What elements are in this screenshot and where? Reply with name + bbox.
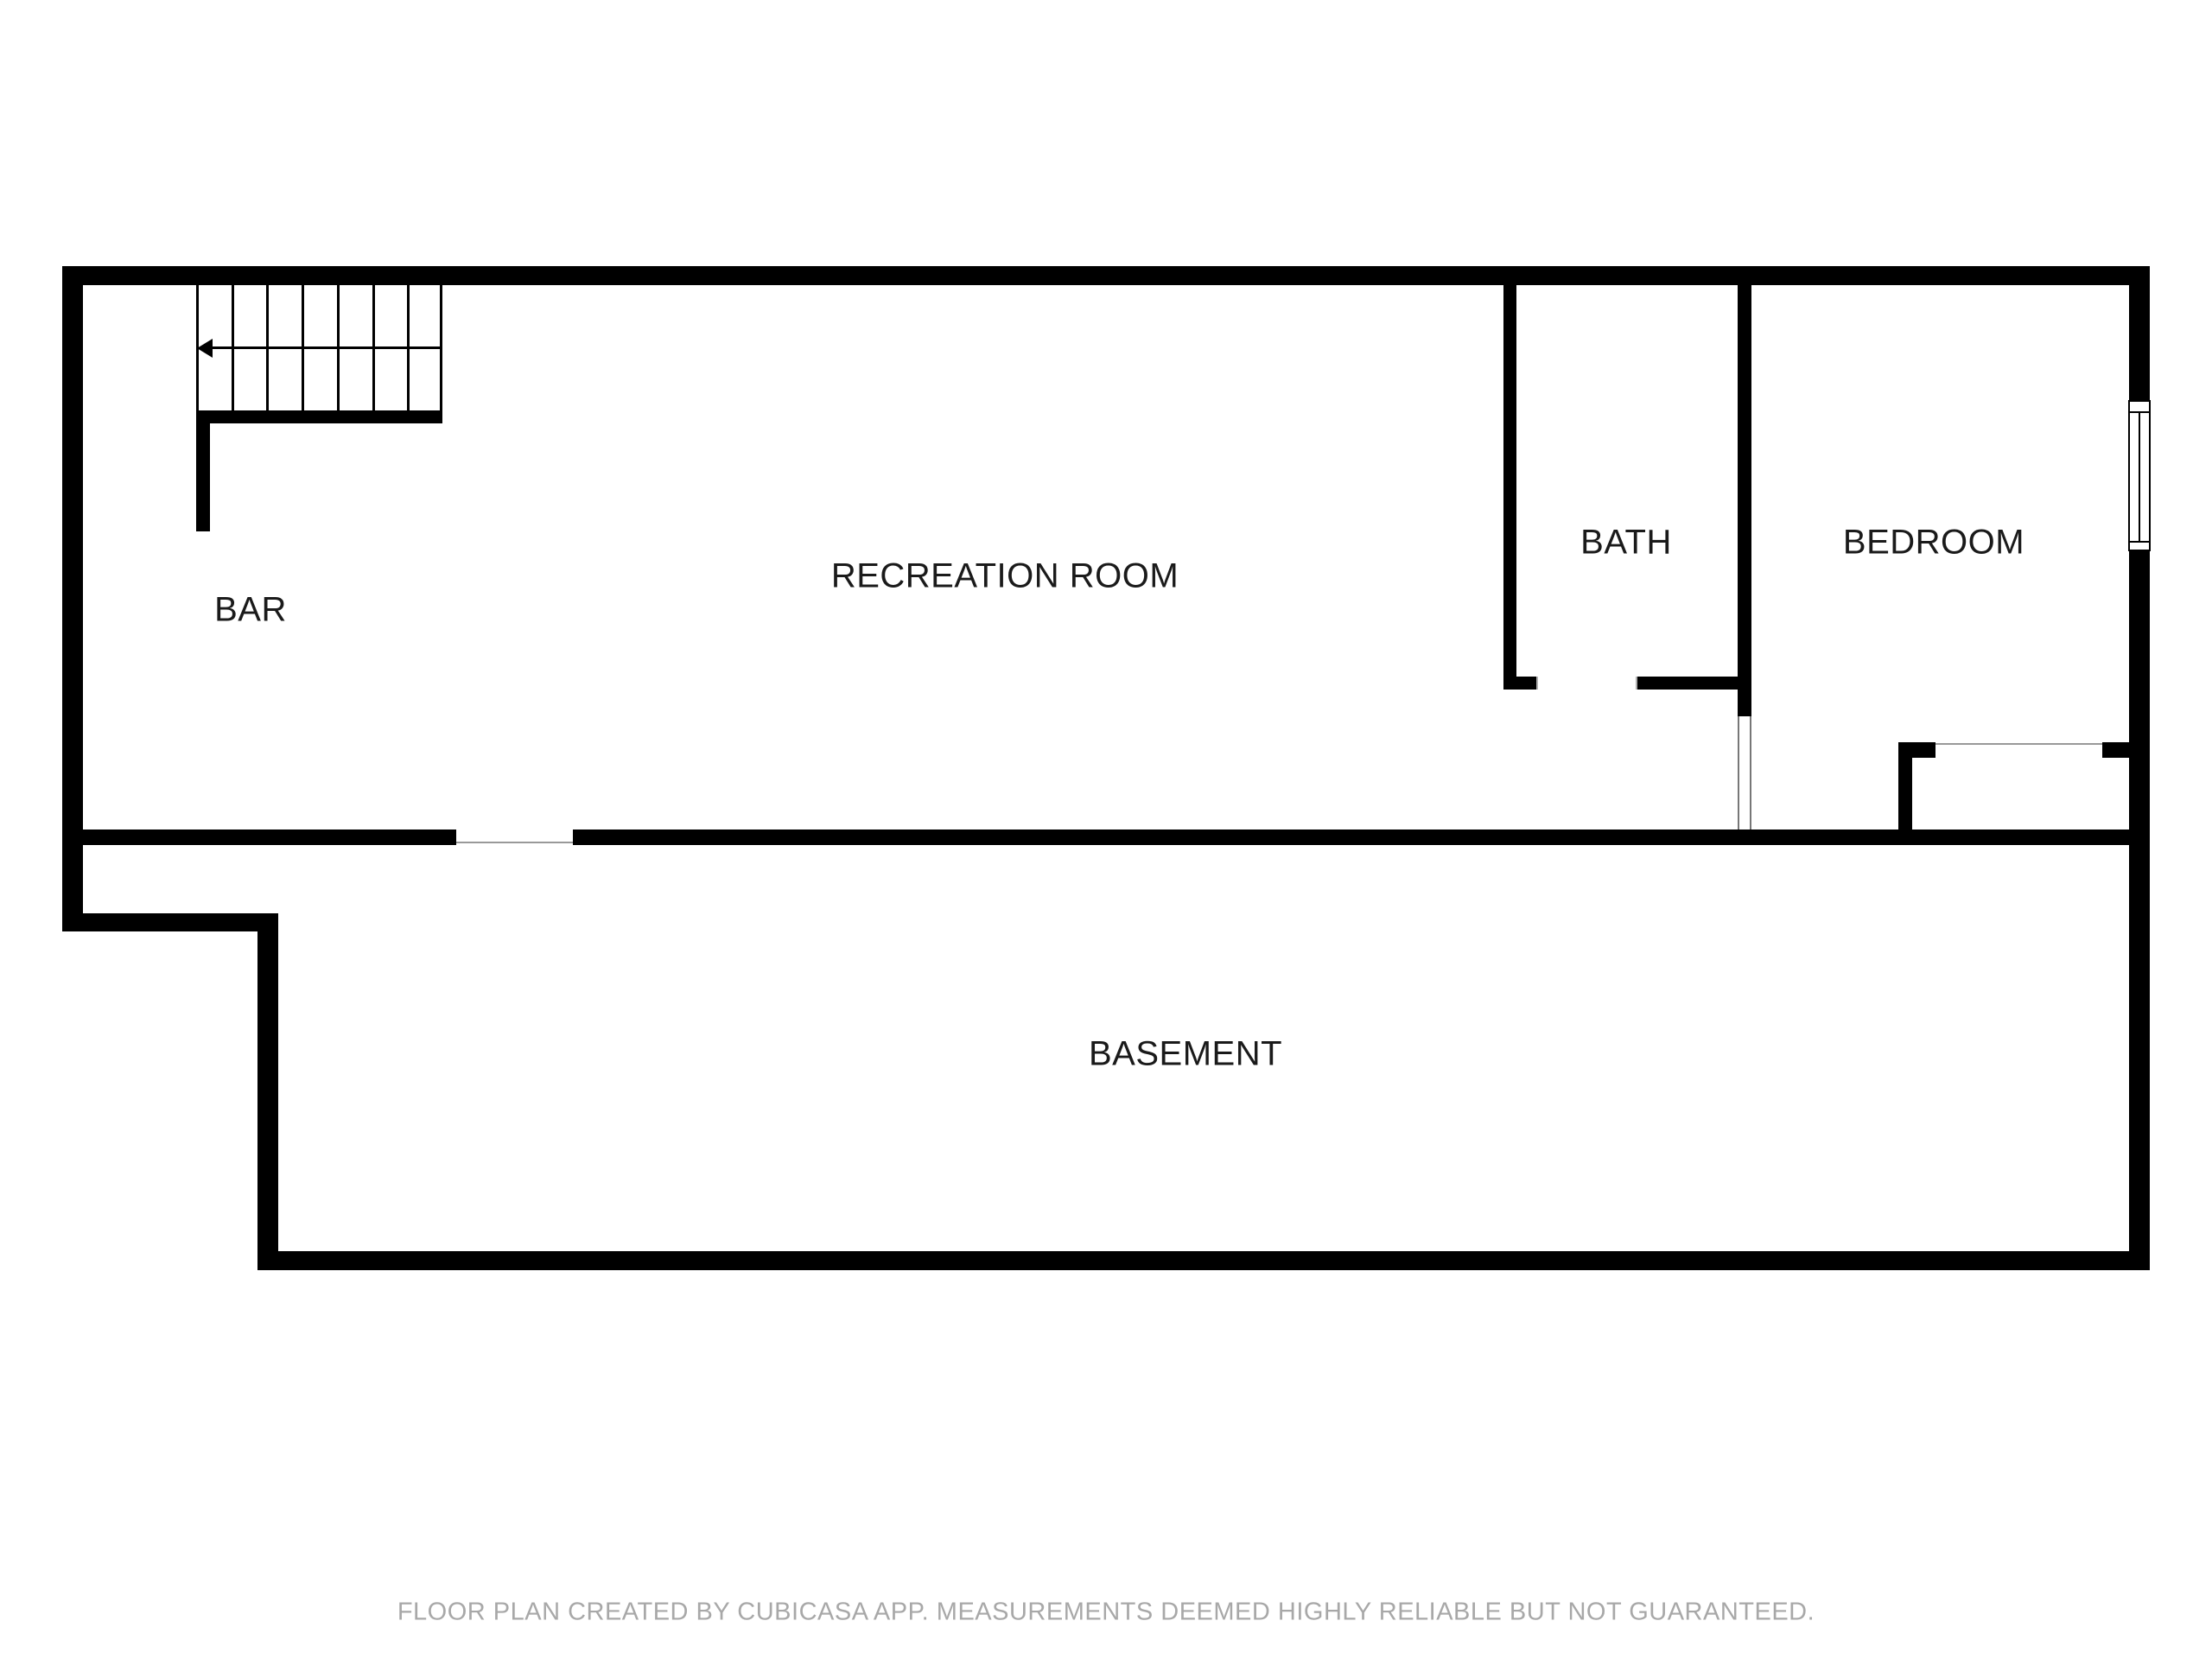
wall-basement-bottom (257, 1251, 2150, 1270)
rec-bedroom-cased-opening (1738, 716, 1751, 829)
bedroom-door-opening-line (1935, 743, 2102, 745)
wall-outer-left (62, 266, 83, 931)
room-label-bedroom: BEDROOM (1843, 524, 2024, 563)
window (2128, 400, 2151, 551)
room-label-recreation: RECREATION ROOM (831, 557, 1179, 596)
wall-bath-bottom-left-seg (1503, 677, 1536, 690)
window-glass-line (2139, 411, 2140, 543)
wall-bath-bedroom-divider (1738, 285, 1751, 716)
stair-direction-arrow-icon (197, 339, 213, 358)
wall-stair-bottom (196, 410, 442, 423)
room-label-basement: BASEMENT (1089, 1035, 1282, 1074)
wall-rec-bottom-left (83, 829, 456, 845)
wall-basement-left (257, 913, 278, 1270)
wall-bath-bottom-right-seg (1637, 677, 1738, 690)
bath-door-opening (1536, 677, 1637, 690)
stair-walk-line (212, 346, 442, 349)
wall-under-stairs (196, 423, 210, 531)
room-label-bar: BAR (214, 591, 287, 630)
wall-basement-step (62, 913, 278, 931)
rec-opening-threshold-line (456, 842, 573, 843)
wall-outer-top (62, 266, 2150, 285)
floor-plan: BAR RECREATION ROOM BATH BEDROOM BASEMEN… (0, 0, 2212, 1659)
wall-bedroom-south-right-stub (2102, 742, 2129, 758)
wall-bedroom-entry-connector (1898, 758, 1912, 829)
wall-bedroom-south-left-stub (1898, 742, 1935, 758)
room-label-bath: BATH (1580, 524, 1672, 563)
footer-disclaimer: FLOOR PLAN CREATED BY CUBICASA APP. MEAS… (397, 1599, 1815, 1627)
wall-bath-left (1503, 285, 1516, 690)
wall-rec-bottom-right (573, 829, 2129, 845)
